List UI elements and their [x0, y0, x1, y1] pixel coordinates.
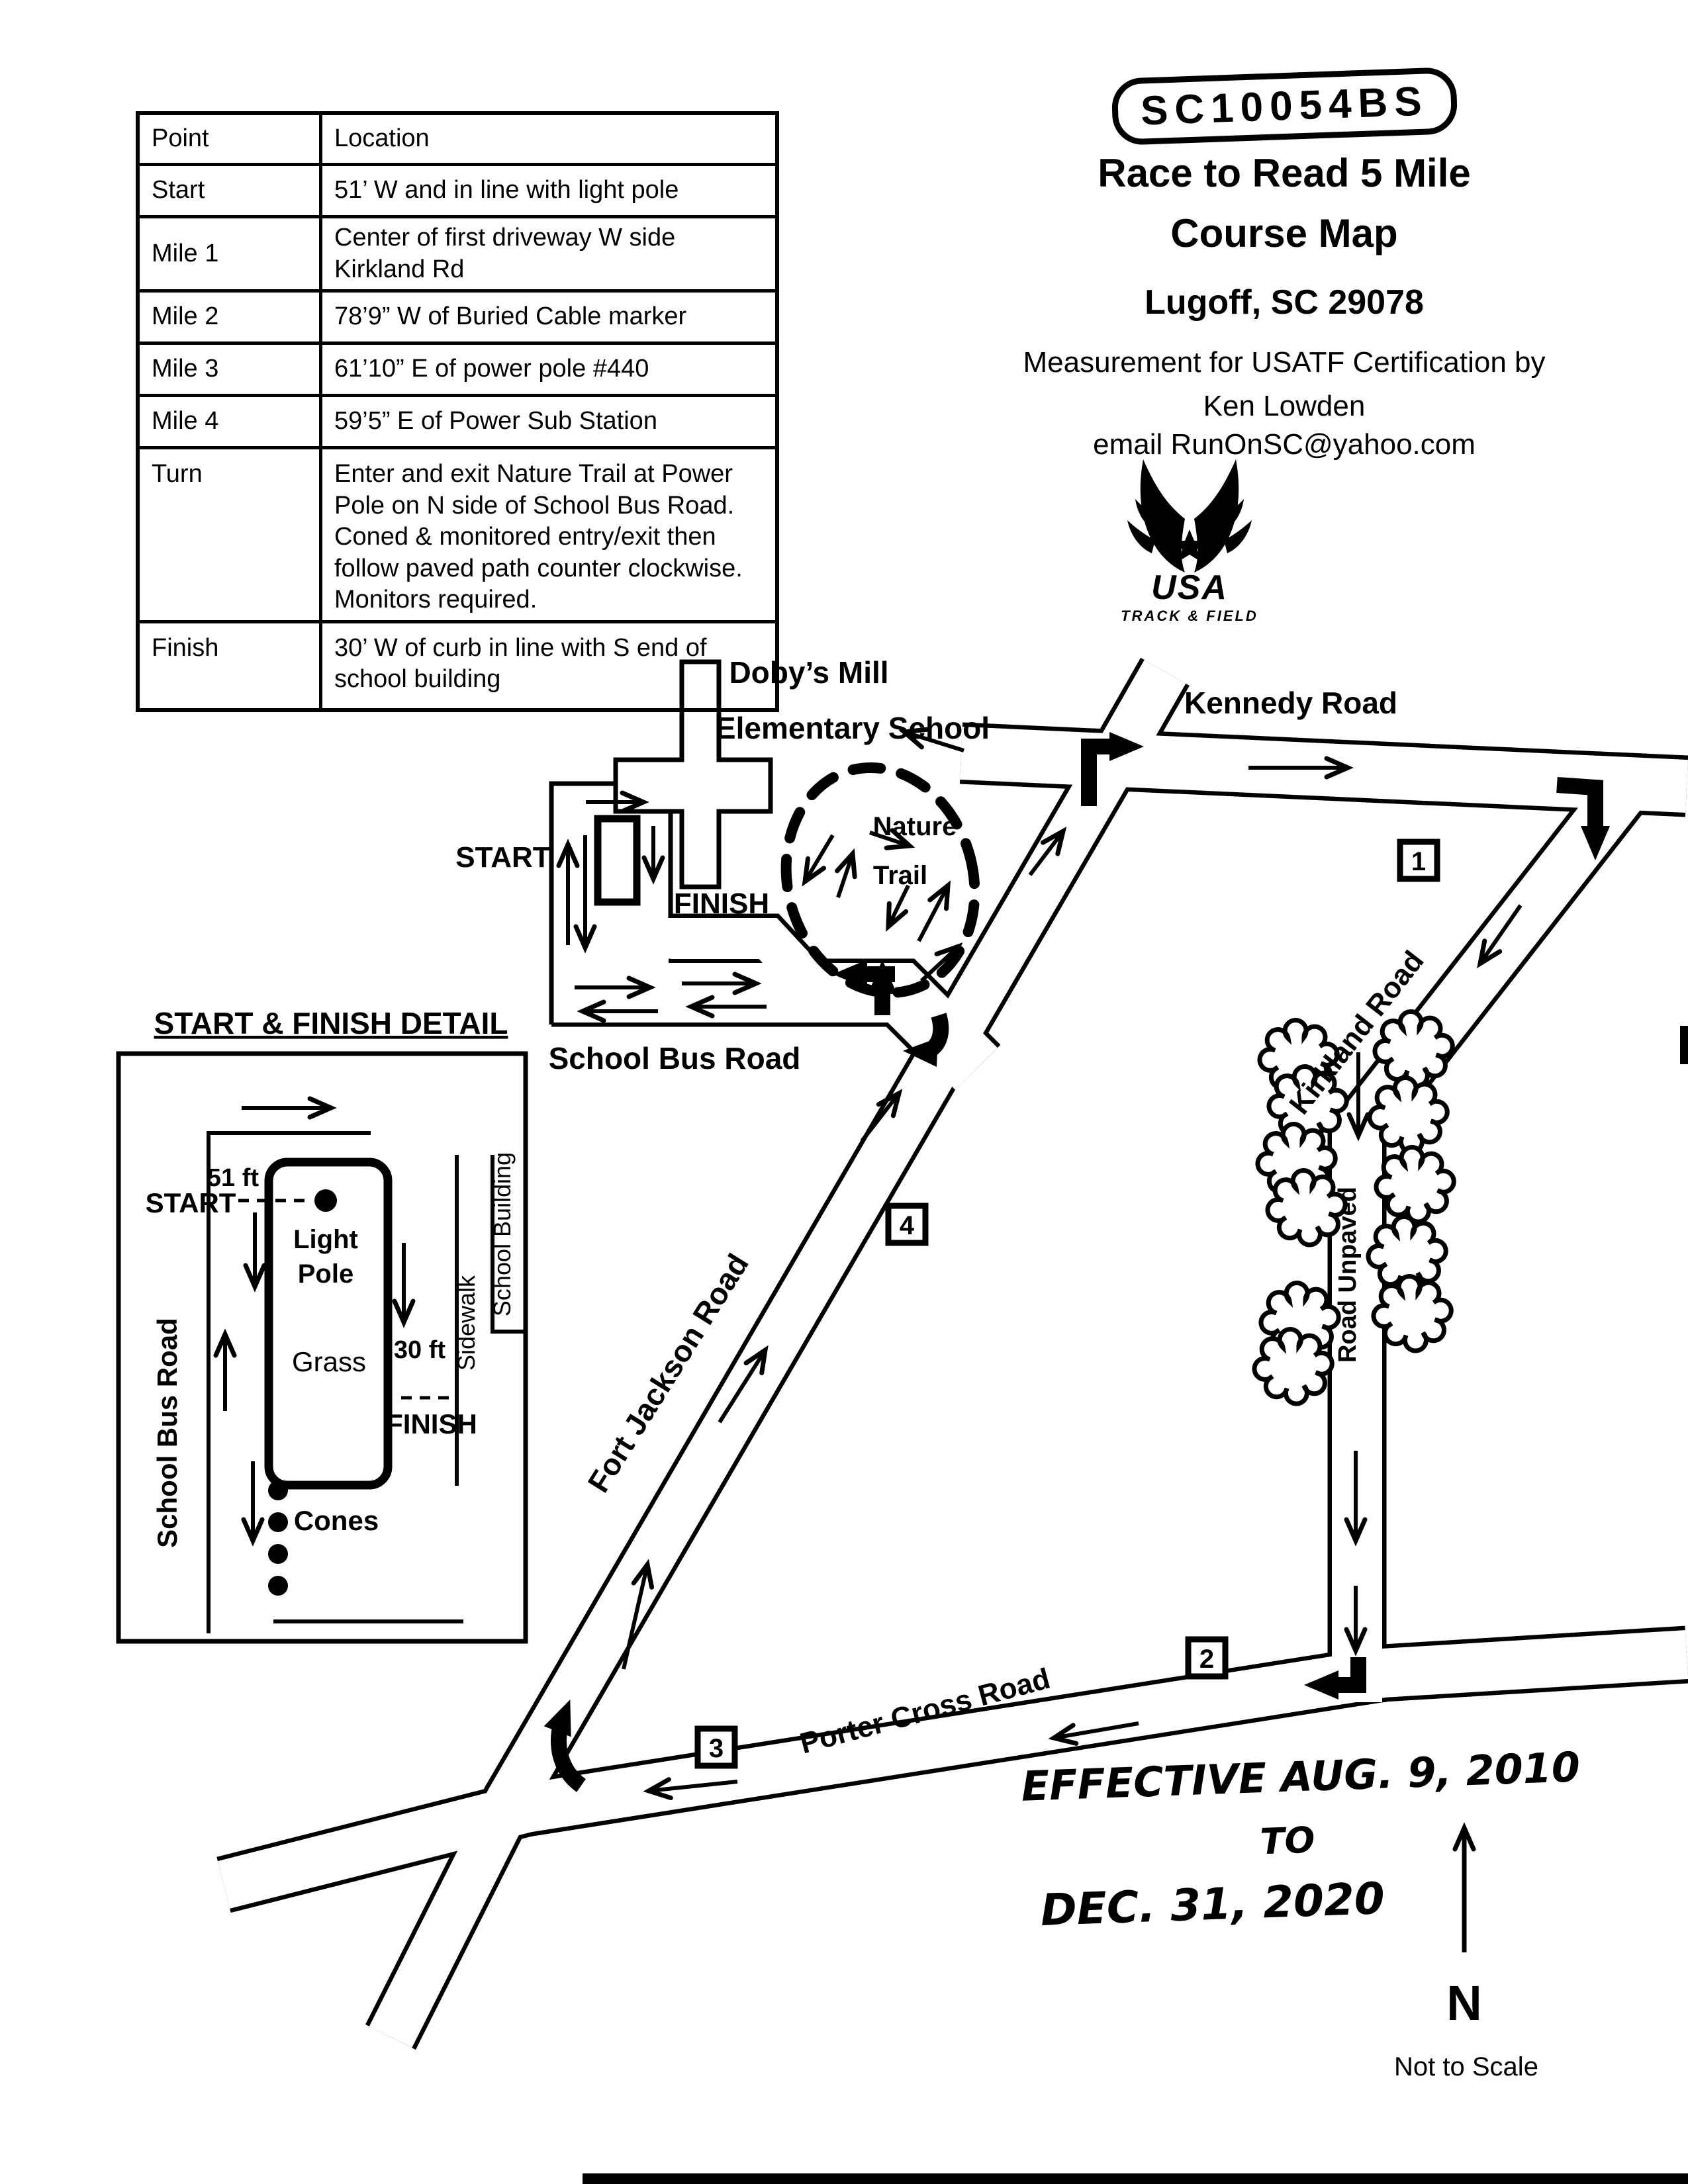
table-row: Mile 2 78’9” W of Buried Cable marker: [138, 291, 777, 343]
contact-email-line: email RunOnSC@yahoo.com: [960, 428, 1609, 461]
point-cell: Finish: [138, 621, 321, 710]
mile-marker-2: 2: [1188, 1639, 1225, 1676]
table-header-point: Point: [138, 113, 321, 165]
effective-dates-line2: TO: [1260, 1819, 1316, 1863]
point-cell: Turn: [138, 448, 321, 622]
document-title-line2: Course Map: [960, 210, 1609, 256]
inset-title: START & FINISH DETAIL: [154, 1006, 508, 1040]
point-cell: Mile 4: [138, 396, 321, 448]
inset-school-bus-road-label: School Bus Road: [152, 1318, 183, 1548]
course-map-document: 1 2 3 4 Kennedy Road Kirkland Road Road …: [0, 0, 1688, 2184]
mile-4-label: 4: [900, 1211, 915, 1240]
location-cell: 78’9” W of Buried Cable marker: [321, 291, 778, 343]
loop-island: [598, 819, 637, 902]
table-header-location: Location: [321, 113, 778, 165]
effective-dates-line3: DEC. 31, 2020: [1040, 1873, 1385, 1936]
certification-id: SC10054BS: [1111, 67, 1458, 146]
start-finish-detail-inset: START & FINISH DETAIL School Bus Road 51…: [118, 1006, 526, 1641]
location-cell: Center of first driveway W side Kirkland…: [321, 217, 778, 291]
table-row: Finish 30’ W of curb in line with S end …: [138, 621, 777, 710]
table-header-row: Point Location: [138, 113, 777, 165]
light-pole-dot: [314, 1189, 337, 1212]
point-cell: Mile 1: [138, 217, 321, 291]
map-finish-label: FINISH: [674, 887, 769, 920]
mile-marker-4: 4: [888, 1206, 925, 1243]
effective-dates-line1: EFFECTIVE AUG. 9, 2010: [1021, 1743, 1581, 1810]
inset-lightpole-line2: Pole: [298, 1259, 353, 1289]
scan-edge-mark: [1680, 1026, 1688, 1064]
mile-2-label: 2: [1199, 1645, 1214, 1674]
nature-trail-line1: Nature: [873, 812, 957, 841]
table-row: Turn Enter and exit Nature Trail at Powe…: [138, 448, 777, 622]
mile-marker-1: 1: [1400, 842, 1437, 879]
table-row: Mile 4 59’5” E of Power Sub Station: [138, 396, 777, 448]
inset-sidewalk-label: Sidewalk: [453, 1275, 480, 1371]
inset-finish-label: FINISH: [386, 1408, 477, 1439]
course-points-table: Point Location Start 51’ W and in line w…: [136, 111, 779, 712]
cone-dot: [268, 1576, 288, 1596]
usatf-logo: USA TRACK & FIELD: [1121, 459, 1258, 624]
point-cell: Start: [138, 165, 321, 217]
usatf-org-label: USA: [1151, 569, 1228, 607]
north-label: N: [1446, 1976, 1481, 2030]
measurement-credit-line: Measurement for USATF Certification by: [960, 346, 1609, 379]
mile-marker-3: 3: [698, 1729, 735, 1766]
usatf-suborg-label: TRACK & FIELD: [1121, 608, 1258, 624]
document-title-line1: Race to Read 5 Mile: [960, 150, 1609, 196]
table-row: Mile 3 61’10” E of power pole #440: [138, 343, 777, 396]
inset-lightpole-line1: Light: [293, 1225, 358, 1254]
mile-3-label: 3: [709, 1734, 724, 1763]
road-unpaved-label: Road Unpaved: [1334, 1187, 1362, 1363]
mile-1-label: 1: [1411, 847, 1426, 876]
cone-dot: [268, 1544, 288, 1564]
school-name-line2: Elementary School: [716, 711, 990, 745]
cone-dot: [268, 1480, 288, 1500]
point-cell: Mile 2: [138, 291, 321, 343]
location-cell: 61’10” E of power pole #440: [321, 343, 778, 396]
location-cell: 30’ W of curb in line with S end of scho…: [321, 621, 778, 710]
footer-annotations: EFFECTIVE AUG. 9, 2010 TO DEC. 31, 2020 …: [1021, 1743, 1581, 2081]
table-row: Mile 1 Center of first driveway W side K…: [138, 217, 777, 291]
location-cell: Enter and exit Nature Trail at Power Pol…: [321, 448, 778, 622]
point-cell: Mile 3: [138, 343, 321, 396]
inset-30ft-label: 30 ft: [394, 1336, 445, 1364]
usatf-wings-icon: [1127, 459, 1252, 572]
not-to-scale-label: Not to Scale: [1394, 2052, 1538, 2081]
nature-trail-line2: Trail: [873, 861, 927, 890]
inset-start-label: START: [146, 1187, 236, 1218]
school-bus-road-label: School Bus Road: [549, 1041, 801, 1075]
cone-dot: [268, 1512, 288, 1532]
document-header: SC10054BS Race to Read 5 Mile Course Map…: [960, 73, 1609, 461]
location-cell: 51’ W and in line with light pole: [321, 165, 778, 217]
inset-cones-label: Cones: [294, 1505, 379, 1536]
location-cell: 59’5” E of Power Sub Station: [321, 396, 778, 448]
map-start-label: START: [455, 841, 551, 874]
kennedy-road-label: Kennedy Road: [1184, 686, 1397, 720]
scan-edge-bar: [583, 2173, 1688, 2184]
inset-school-building-label: School Building: [489, 1152, 516, 1316]
document-location: Lugoff, SC 29078: [960, 283, 1609, 322]
table-row: Start 51’ W and in line with light pole: [138, 165, 777, 217]
measurer-name: Ken Lowden: [960, 390, 1609, 423]
inset-grass-label: Grass: [292, 1346, 366, 1377]
